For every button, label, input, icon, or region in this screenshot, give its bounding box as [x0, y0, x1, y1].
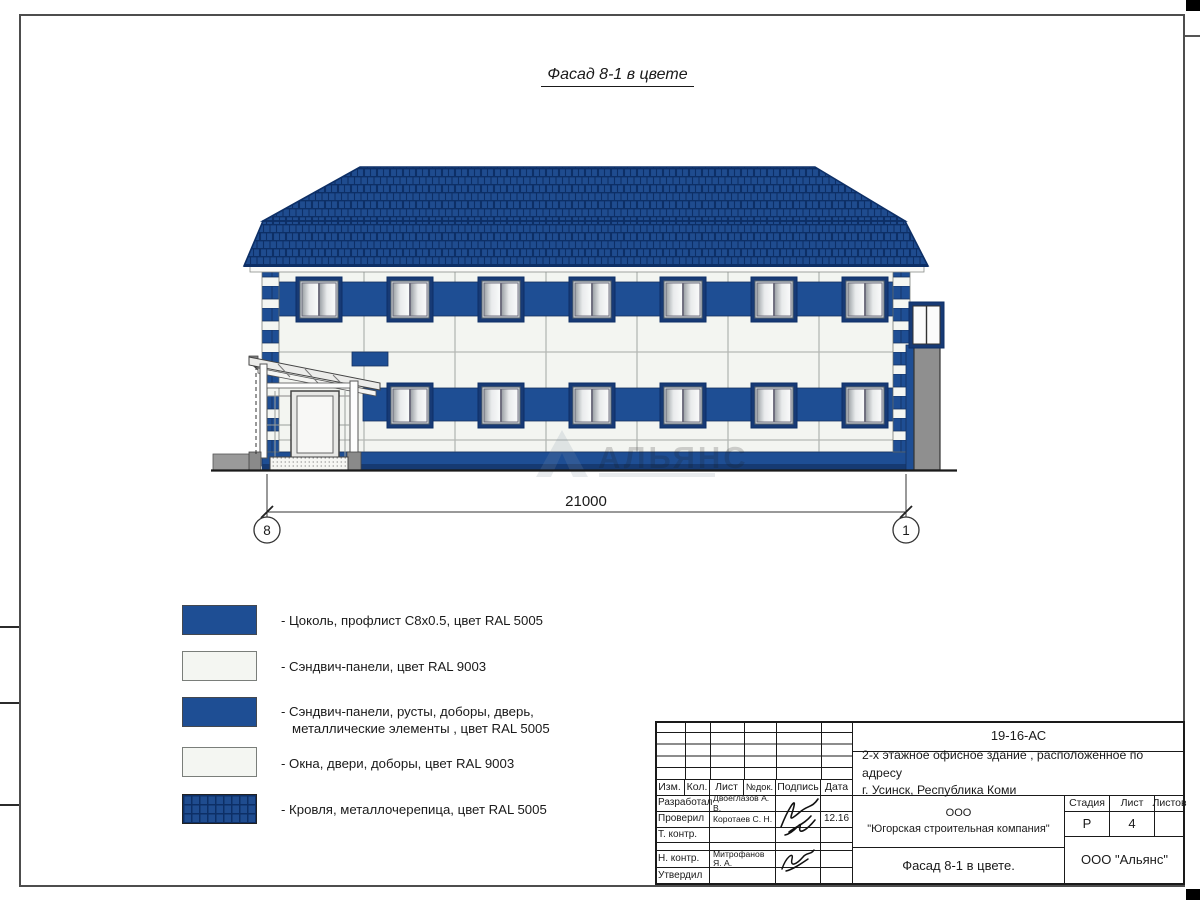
name-razrabotal: Двоеглазов А. В.	[710, 796, 776, 812]
stage-value: Р	[1065, 812, 1110, 837]
col-header-izm: Изм.	[655, 780, 685, 796]
window	[842, 383, 888, 428]
legend-label: - Сэндвич-панели, цвет RAL 9003	[281, 658, 486, 675]
sheet-value: 4	[1110, 812, 1155, 837]
porch-post-left	[260, 364, 267, 458]
axis-markers: 8 1	[254, 517, 919, 543]
lower-window-band	[363, 388, 893, 421]
window	[387, 383, 433, 428]
legend-swatch-plinth	[182, 605, 257, 635]
porch-pad-left	[213, 454, 250, 470]
signature-razrabotal	[775, 789, 825, 839]
project-name: 2-х этажное офисное здание , расположенн…	[853, 752, 1185, 796]
window	[387, 277, 433, 322]
sheets-value	[1155, 812, 1185, 837]
axis-label-left: 8	[263, 523, 271, 538]
window	[296, 277, 342, 322]
window	[569, 383, 615, 428]
porch-grating	[270, 457, 348, 470]
col-header-data: Дата	[821, 780, 853, 796]
window	[751, 277, 797, 322]
org-name: ООО "Альянс"	[1065, 837, 1185, 885]
window	[842, 277, 888, 322]
legend-label: - Сэндвич-панели, русты, доборы, дверь, …	[281, 703, 550, 737]
window	[478, 277, 524, 322]
col-header-kol: Кол.	[685, 780, 710, 796]
window	[660, 277, 706, 322]
stage-label: Стадия	[1065, 796, 1110, 812]
company-name: ООО "Югорская строительная компания"	[853, 796, 1065, 848]
window	[478, 383, 524, 428]
role-proveril: Проверил	[655, 812, 710, 828]
signature-n-kontr	[778, 847, 822, 875]
role-t-kontr: Т. контр.	[655, 828, 710, 843]
legend-swatch-panels	[182, 651, 257, 681]
legend-label: - Окна, двери, доборы, цвет RAL 9003	[281, 755, 514, 772]
roof	[244, 167, 928, 266]
name-proveril: Коротаев С. Н.	[710, 812, 776, 828]
date-proveril: 12.16	[821, 812, 853, 828]
legend-label: - Цоколь, профлист С8х0.5, цвет RAL 5005	[281, 612, 543, 629]
sheet-label: Лист	[1110, 796, 1155, 812]
sheets-label: Листов	[1155, 796, 1185, 812]
window	[751, 383, 797, 428]
title-block: Изм. Кол. Лист №док. Подпись Дата Разраб…	[655, 721, 1185, 885]
sheet-title: Фасад 8-1 в цвете.	[853, 848, 1065, 885]
axis-label-right: 1	[902, 523, 910, 538]
legend-swatch-blue-elements	[182, 697, 257, 727]
porch-post-right	[350, 381, 358, 458]
window	[569, 277, 615, 322]
dimension-value: 21000	[565, 493, 607, 510]
role-utverdil: Утвердил	[655, 868, 710, 885]
window	[660, 383, 706, 428]
name-n-kontr: Митрофанов Я. А.	[710, 851, 776, 868]
porch-flashing	[352, 352, 388, 366]
drawing-sheet: { "page": { "title": "Фасад 8-1 в цвете"…	[0, 0, 1200, 900]
role-razrabotal: Разработал	[655, 796, 710, 812]
role-n-kontr: Н. контр.	[655, 851, 710, 868]
vent-shaft	[906, 302, 944, 470]
legend-swatch-roof	[182, 794, 257, 824]
legend-label: - Кровля, металлочерепица, цвет RAL 5005	[281, 801, 547, 818]
legend-swatch-windows	[182, 747, 257, 777]
